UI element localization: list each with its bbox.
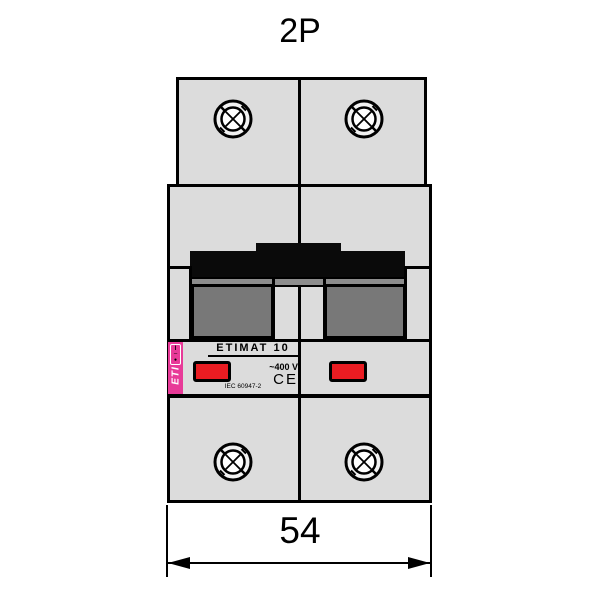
breaker-technical-drawing: 2P I – ● ETI ETIMAT 10 ~400 V CE IEC 609… (0, 0, 600, 600)
screw-terminal-icon (210, 96, 256, 142)
inner-edge-line-right (404, 266, 407, 342)
page-title: 2P (265, 13, 335, 50)
dimension-arrow-icon (164, 551, 434, 575)
arc-chamber-left (191, 284, 274, 339)
face-step-line-right (404, 266, 432, 269)
dimension-value: 54 (269, 510, 331, 552)
arc-chamber-right (324, 284, 406, 339)
screw-terminal-icon (210, 439, 256, 485)
off-mark: ● (174, 357, 177, 363)
standard-label: IEC 60947-2 (218, 383, 268, 390)
chamber-separator-line (323, 277, 326, 339)
label-area-top-line (167, 339, 432, 342)
brand-label: I – ● ETI (168, 342, 183, 394)
model-label: ETIMAT 10 (208, 342, 298, 357)
toggle-bar (190, 251, 405, 277)
switch-position-marks: I – ● (170, 344, 181, 365)
screw-terminal-icon (341, 439, 387, 485)
screw-terminal-icon (341, 96, 387, 142)
pole-divider-line (298, 77, 301, 503)
brand-text: ETI (170, 366, 181, 385)
inner-edge-line-left (189, 266, 192, 342)
chamber-separator-line (272, 277, 275, 339)
indicator-window-right (329, 361, 367, 382)
indicator-window-left (193, 361, 231, 382)
